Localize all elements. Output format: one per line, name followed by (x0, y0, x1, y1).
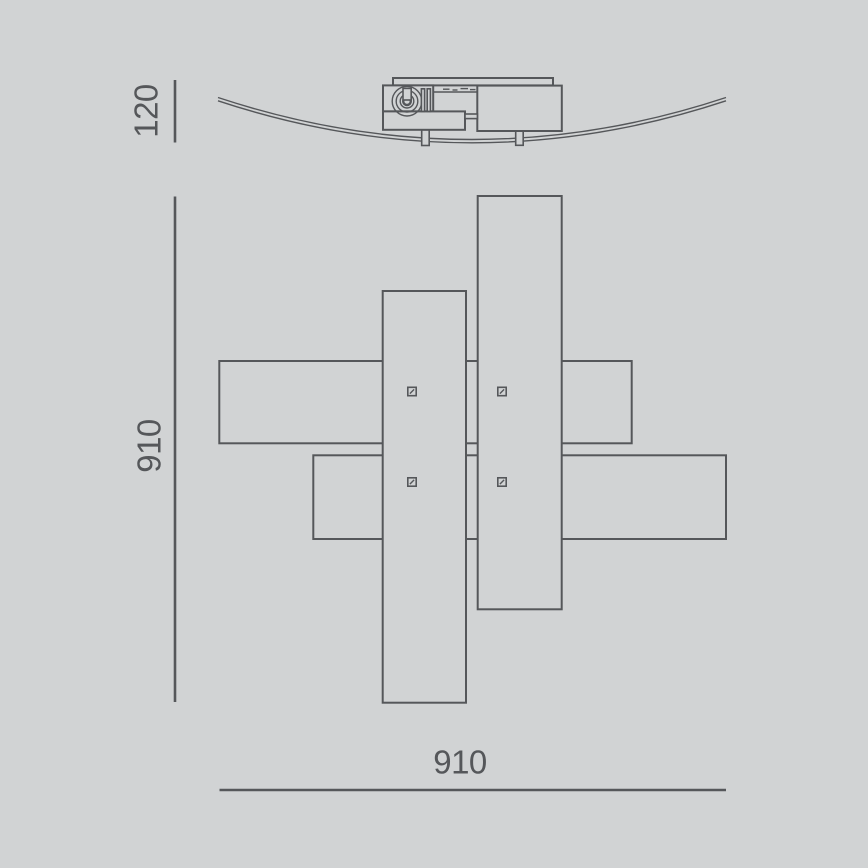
mounting-plate (393, 78, 553, 85)
screw-bottom-left (408, 478, 416, 486)
side-view (218, 78, 726, 146)
dimension-label-910-left: 910 (131, 419, 168, 473)
glass-curve-inner (218, 101, 726, 143)
support-bar (383, 111, 465, 129)
glass-clip-right (516, 131, 524, 146)
screw-top-left (408, 387, 416, 395)
coil-slot (403, 88, 411, 100)
dimension-plan-height: 910 (131, 197, 176, 703)
lamp-spec-svg: 120 910 910 (0, 0, 868, 868)
dimension-label-120: 120 (128, 84, 165, 138)
divider-tab-2 (427, 89, 430, 112)
screw-bottom-right (498, 478, 506, 486)
connector-bracket (465, 114, 477, 119)
dimension-plan-width: 910 (220, 744, 727, 791)
glass-clip-left (422, 130, 430, 146)
divider-tab-1 (421, 89, 424, 112)
panel-vertical-left (383, 291, 466, 703)
driver-box (477, 86, 562, 131)
vent-slots (443, 89, 476, 90)
dimension-label-910-bottom: 910 (433, 744, 487, 781)
screw-top-right (498, 387, 506, 395)
plan-view (219, 196, 726, 703)
panel-vertical-right (478, 196, 562, 609)
dimension-drawing: 120 910 910 (0, 0, 868, 868)
dimension-side-height: 120 (128, 80, 176, 143)
